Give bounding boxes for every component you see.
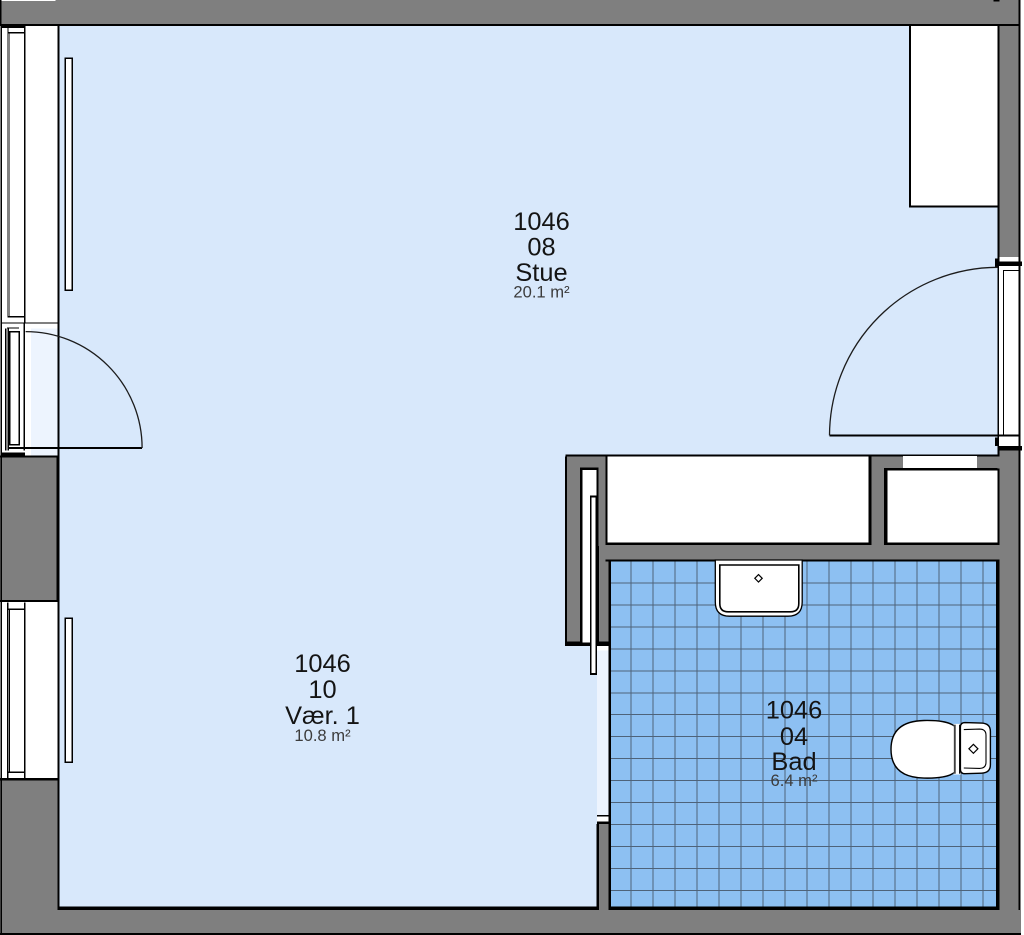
svg-text:1046: 1046 bbox=[766, 697, 822, 725]
svg-text:08: 08 bbox=[527, 234, 555, 262]
svg-text:20.1 m²: 20.1 m² bbox=[513, 283, 570, 302]
svg-text:6.4 m²: 6.4 m² bbox=[770, 771, 818, 790]
svg-text:04: 04 bbox=[780, 723, 808, 751]
svg-text:10: 10 bbox=[308, 676, 336, 704]
svg-text:1046: 1046 bbox=[294, 650, 350, 678]
svg-text:1046: 1046 bbox=[513, 208, 569, 236]
svg-text:10.8 m²: 10.8 m² bbox=[294, 726, 351, 745]
